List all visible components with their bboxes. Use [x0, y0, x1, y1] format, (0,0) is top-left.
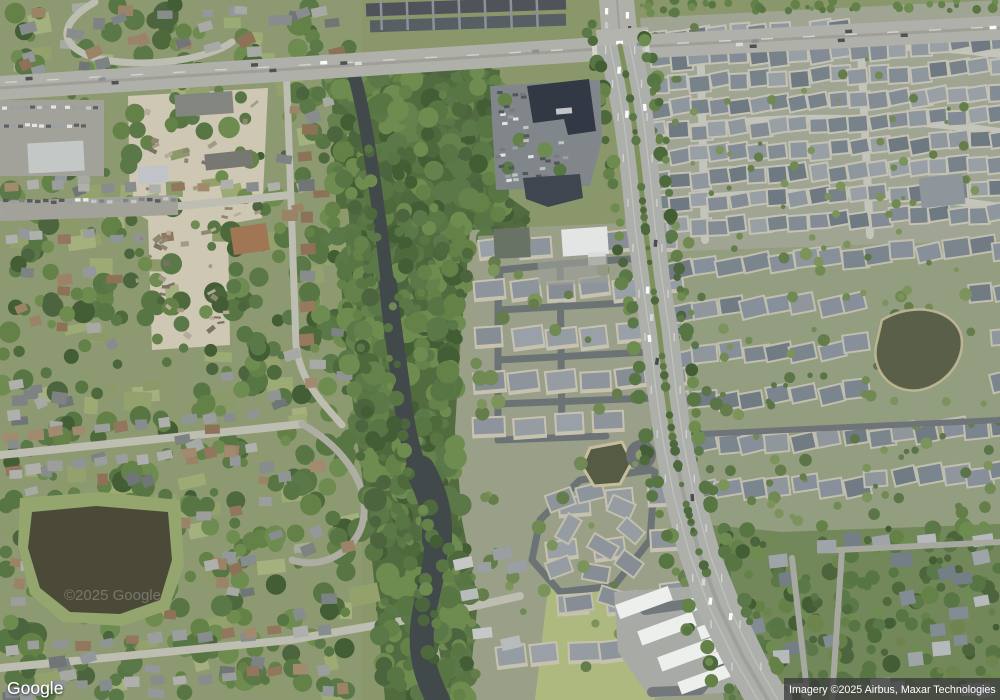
svg-text:Imagery ©2025 Airbus, Maxar Te: Imagery ©2025 Airbus, Maxar Technologies: [789, 684, 996, 696]
svg-text:Google: Google: [7, 678, 63, 698]
svg-text:©2025 Google: ©2025 Google: [64, 587, 161, 604]
